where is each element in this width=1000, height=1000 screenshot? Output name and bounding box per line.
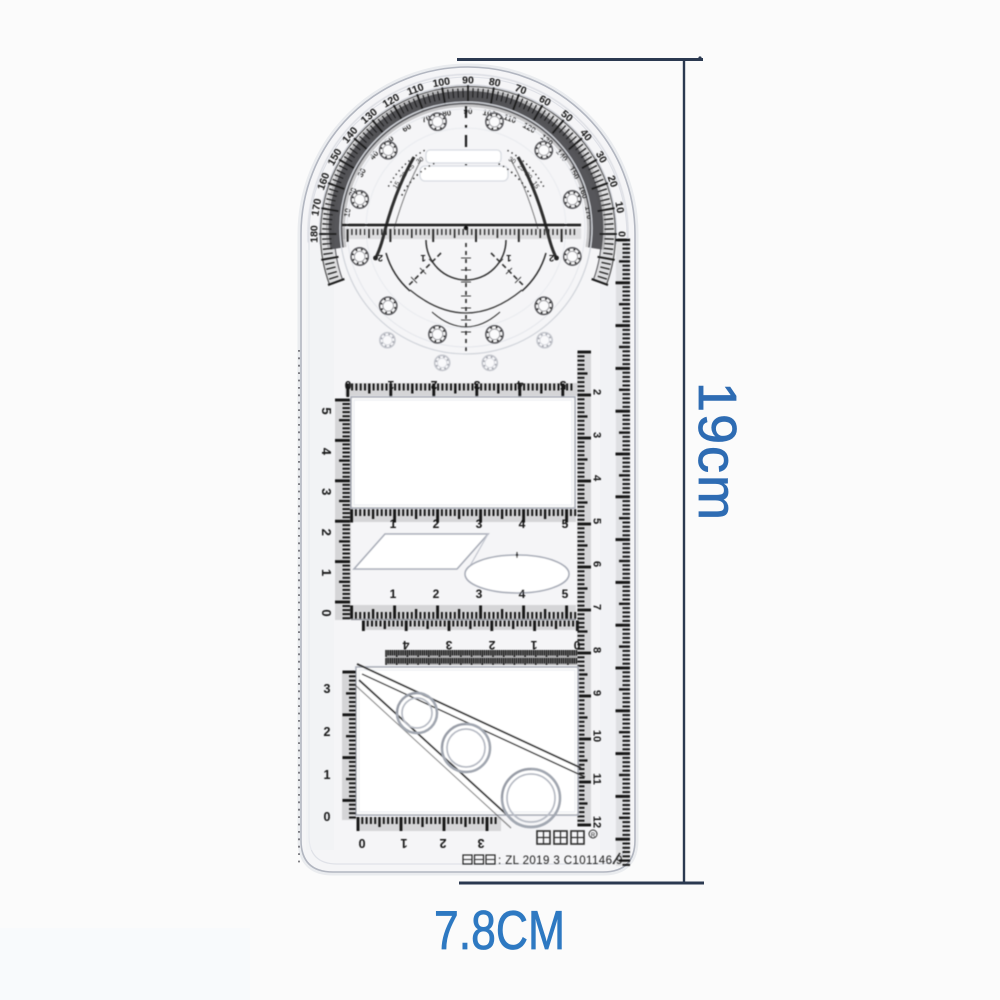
svg-text:1: 1 [390,517,397,531]
svg-text:6: 6 [591,561,603,567]
svg-text:1: 1 [390,587,397,601]
svg-text:: ZL 2019 3 C101146.9: : ZL 2019 3 C101146.9 [498,855,623,867]
svg-text:3: 3 [473,378,480,392]
svg-text:5: 5 [559,378,566,392]
svg-text:7.8CM: 7.8CM [434,899,565,961]
svg-text:1: 1 [324,768,331,782]
svg-text:R: R [591,833,596,839]
svg-text:2: 2 [488,638,495,652]
svg-text:4: 4 [402,638,409,652]
svg-text:5: 5 [562,587,569,601]
svg-text:19cm: 19cm [687,382,747,522]
svg-text:2: 2 [549,252,554,263]
svg-text:2: 2 [319,529,334,536]
svg-text:2: 2 [378,252,383,263]
svg-text:90: 90 [462,75,474,87]
svg-text:0: 0 [319,609,334,616]
svg-text:0: 0 [358,836,365,850]
svg-text:80: 80 [488,76,502,90]
svg-text:12: 12 [591,816,603,828]
svg-text:3: 3 [476,587,483,601]
svg-text:9: 9 [591,690,603,696]
svg-text:0: 0 [344,378,351,392]
svg-text:4: 4 [519,587,526,601]
svg-text:2: 2 [439,836,446,850]
svg-text:5: 5 [562,517,569,531]
svg-text:3: 3 [445,638,452,652]
svg-text:5: 5 [591,518,603,524]
svg-text:2: 2 [591,389,603,395]
svg-text:1: 1 [420,252,426,263]
svg-text:10: 10 [612,201,626,215]
svg-text:1: 1 [387,378,394,392]
svg-text:2: 2 [430,378,437,392]
svg-text:7: 7 [591,604,603,610]
svg-text:11: 11 [591,773,603,785]
svg-text:0: 0 [616,231,628,237]
svg-text:3: 3 [319,488,334,495]
svg-text:10: 10 [591,730,603,742]
svg-text:4: 4 [591,475,603,482]
svg-text:1: 1 [530,638,537,652]
svg-text:2: 2 [433,587,440,601]
svg-text:3: 3 [476,517,483,531]
svg-text:4: 4 [319,448,334,456]
svg-text:1: 1 [319,569,334,576]
svg-text:3: 3 [591,432,603,438]
svg-text:3: 3 [324,682,331,696]
svg-text:2: 2 [324,725,331,739]
svg-text:0: 0 [324,810,331,824]
svg-text:3: 3 [477,836,484,850]
svg-text:1: 1 [400,836,407,850]
svg-text:1: 1 [505,252,511,263]
svg-text:8: 8 [591,647,603,653]
svg-text:4: 4 [519,517,526,531]
svg-text:5: 5 [319,407,334,414]
svg-text:2: 2 [433,517,440,531]
svg-text:4: 4 [516,378,523,392]
svg-text:180: 180 [309,225,321,243]
